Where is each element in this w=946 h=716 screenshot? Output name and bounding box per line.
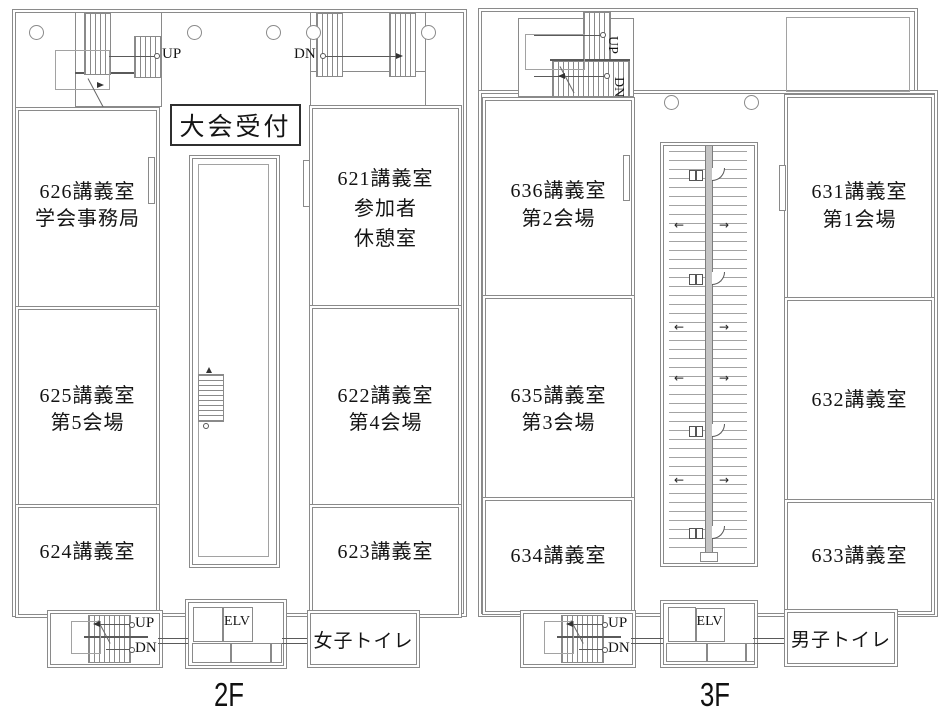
- corridor-line: [753, 643, 787, 644]
- up-label: UP: [604, 36, 620, 54]
- door-jamb: [696, 170, 703, 181]
- stair-direction-arrow-icon: [558, 73, 565, 79]
- dn-label: DN: [608, 640, 630, 657]
- door-jamb: [689, 170, 696, 181]
- dn-label: DN: [610, 77, 626, 97]
- room-635: 635講義室 第3会場: [485, 298, 632, 502]
- corridor-line: [631, 638, 663, 639]
- floor-plan-diagram: UP DN 大会受付 626講義室 学会事務局: [0, 0, 946, 716]
- up-label: UP: [608, 615, 627, 632]
- leader-line: [534, 35, 600, 36]
- service-room: [707, 643, 746, 662]
- left-arrow-icon: ←: [674, 372, 684, 384]
- left-arrow-icon: ←: [674, 474, 684, 486]
- left-arrow-icon: ←: [674, 219, 684, 231]
- door-jamb: [689, 528, 696, 539]
- door-jamb: [696, 426, 703, 437]
- hall-center-aisle: [705, 146, 713, 560]
- toilet-label: 男子トイレ: [791, 625, 891, 652]
- room-631: 631講義室 第1会場: [787, 97, 932, 302]
- room-label: 633講義室: [788, 543, 931, 569]
- service-room: [666, 643, 707, 662]
- column-circle: [664, 95, 679, 110]
- leader-line: [573, 624, 602, 625]
- left-arrow-icon: ←: [674, 321, 684, 333]
- right-arrow-icon: →: [719, 219, 729, 231]
- service-room: [668, 607, 696, 642]
- room-632: 632講義室: [787, 300, 932, 504]
- right-arrow-icon: →: [719, 321, 729, 333]
- stair-handrail: [525, 34, 585, 70]
- door-jamb: [696, 528, 703, 539]
- door-jamb: [689, 426, 696, 437]
- corridor-line: [753, 638, 787, 639]
- floor-plan-3f: UP DN ← → ← → ← → ← →: [0, 0, 946, 716]
- toilet-room: 男子トイレ: [787, 612, 895, 664]
- reception-box: 大会受付: [170, 104, 301, 146]
- stair-direction-arrow-icon: [566, 621, 573, 627]
- room-label: 635講義室 第3会場: [486, 383, 631, 437]
- room-label: 632講義室: [788, 387, 931, 413]
- corridor-line: [631, 643, 663, 644]
- room-634: 634講義室: [485, 500, 632, 612]
- room-label: 636講義室 第2会場: [486, 177, 631, 233]
- door-jamb: [696, 274, 703, 285]
- room-label: 634講義室: [486, 543, 631, 569]
- room-636: 636講義室 第2会場: [485, 100, 632, 300]
- reception-label: 大会受付: [179, 107, 291, 143]
- leader-line: [579, 649, 602, 650]
- elevator-label: ELV: [696, 614, 723, 630]
- right-arrow-icon: →: [719, 474, 729, 486]
- service-room: [746, 643, 755, 662]
- leader-line: [534, 76, 604, 77]
- room-label: 631講義室 第1会場: [788, 178, 931, 234]
- column-circle: [744, 95, 759, 110]
- door-slot: [779, 165, 786, 211]
- right-arrow-icon: →: [719, 372, 729, 384]
- room-633: 633講義室: [787, 502, 932, 612]
- door-jamb: [689, 274, 696, 285]
- floor-caption-3f: 3F: [676, 676, 754, 714]
- upper-room: [786, 17, 910, 92]
- hall-bottom-notch: [700, 552, 718, 562]
- door-slot: [623, 155, 630, 201]
